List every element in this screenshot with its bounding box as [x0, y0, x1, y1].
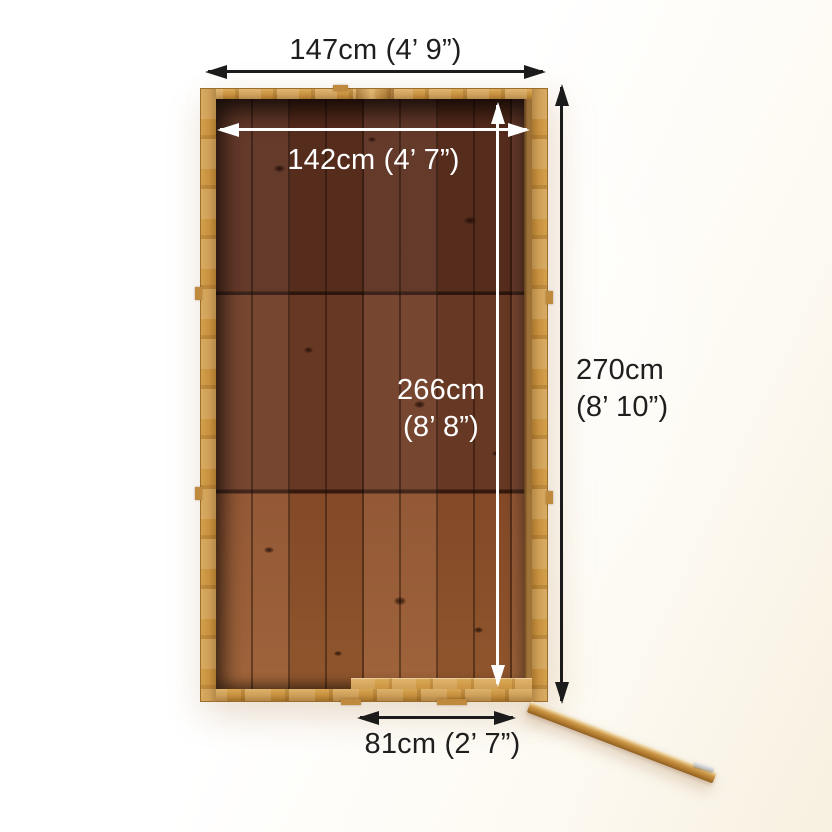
arrow-line [208, 70, 543, 73]
wood-knot [394, 597, 406, 605]
door-width-arrow [357, 710, 516, 726]
arrow-head-right [508, 123, 530, 137]
arrow-head-bottom [555, 682, 569, 704]
arrow-line [360, 716, 513, 719]
shed-door-open [527, 701, 717, 784]
inner-depth-line2: (8’ 8”) [385, 409, 497, 446]
frame-tab-right-1 [546, 291, 553, 304]
door-latch [694, 762, 715, 773]
arrow-head-left [217, 123, 239, 137]
frame-tab-bottom-2 [437, 699, 467, 705]
arrow-line [560, 87, 563, 701]
arrow-line [220, 128, 527, 131]
frame-tab-left-2 [195, 487, 202, 500]
inner-depth-line1: 266cm [385, 372, 497, 409]
wood-knot [264, 547, 274, 553]
shed-frame-left [201, 89, 216, 701]
frame-tab-left-1 [195, 287, 202, 300]
outer-width-label: 147cm (4’ 9”) [205, 32, 546, 69]
arrow-head-right [494, 711, 516, 725]
frame-tab-bottom-1 [341, 699, 361, 705]
shed-frame-right [532, 89, 547, 701]
arrow-head-top [491, 102, 505, 124]
wood-knot [464, 217, 476, 224]
shed-dimension-diagram: 147cm (4’ 9”) 142cm (4’ 7”) 266cm (8’ 8”… [0, 0, 832, 832]
right-wall-plate [524, 99, 532, 689]
outer-depth-line1: 270cm [576, 352, 668, 389]
wood-knot [474, 627, 483, 633]
shed-frame-bottom [201, 689, 547, 701]
arrow-head-bottom [491, 665, 505, 687]
arrow-head-top [555, 84, 569, 106]
outer-depth-label: 270cm (8’ 10”) [576, 352, 668, 426]
inner-width-arrow [217, 122, 530, 138]
outer-depth-line2: (8’ 10”) [576, 389, 668, 426]
wood-knot [334, 651, 342, 656]
inner-depth-label: 266cm (8’ 8”) [385, 372, 497, 446]
wood-knot [304, 347, 313, 353]
frame-joint [356, 89, 394, 99]
door-width-label: 81cm (2’ 7”) [360, 726, 525, 763]
frame-tab-top [333, 85, 348, 91]
inner-width-label: 142cm (4’ 7”) [217, 142, 530, 179]
arrow-head-left [357, 711, 379, 725]
outer-depth-arrow [554, 84, 570, 704]
frame-tab-right-2 [546, 491, 553, 504]
